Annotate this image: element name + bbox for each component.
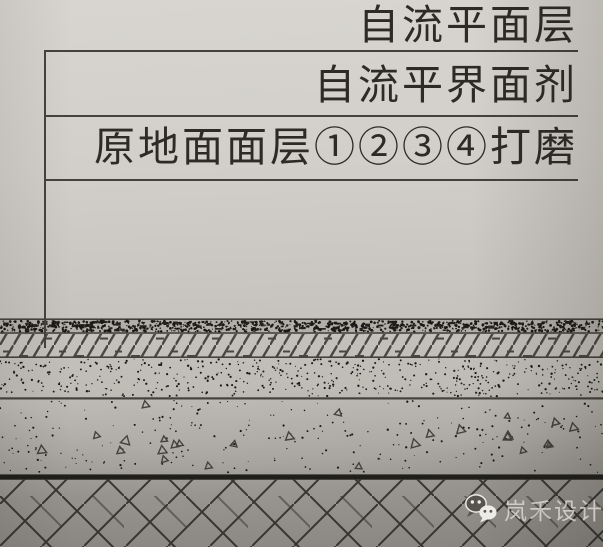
rule-under-hatch — [0, 356, 603, 358]
leader-line-2 — [44, 115, 578, 117]
rule-top — [0, 318, 603, 320]
callout-self-leveling-surface: 自流平面层 — [358, 4, 578, 47]
callout-original-floor-grinding: 原地面面层①②③④打磨 — [94, 126, 578, 169]
rule-under-stipple — [0, 397, 603, 399]
bonding-agent-hatch-dashes — [0, 334, 603, 357]
watermark: 岚禾设计 — [464, 492, 603, 526]
wechat-icon — [464, 493, 499, 525]
leader-line-3 — [44, 179, 578, 181]
slab-top-heavy-rule — [0, 474, 603, 479]
floor-detail-photo: 自流平面层 自流平界面剂 原地面面层①②③④打磨 — [0, 0, 603, 547]
rule-under-self-leveling — [0, 332, 603, 334]
concrete-stipple — [0, 400, 603, 473]
callout-self-leveling-bonding-agent: 自流平界面剂 — [314, 64, 578, 107]
leader-line-1 — [44, 50, 578, 52]
original-floor-stipple — [0, 358, 603, 397]
leader-line-vertical — [44, 50, 46, 348]
watermark-brand: 岚禾设计 — [504, 492, 603, 526]
concrete-aggregate-triangles — [38, 401, 579, 469]
